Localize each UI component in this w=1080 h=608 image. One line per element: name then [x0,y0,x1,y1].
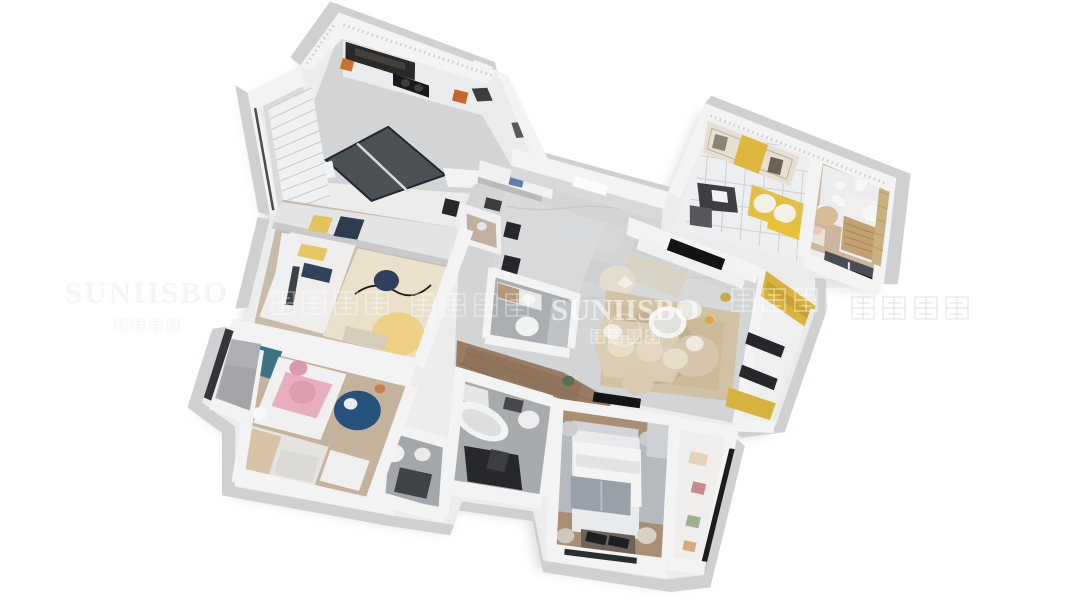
svg-text:SUNIISBO: SUNIISBO [551,292,699,327]
svg-text:SUNIISBO: SUNIISBO [65,275,229,310]
